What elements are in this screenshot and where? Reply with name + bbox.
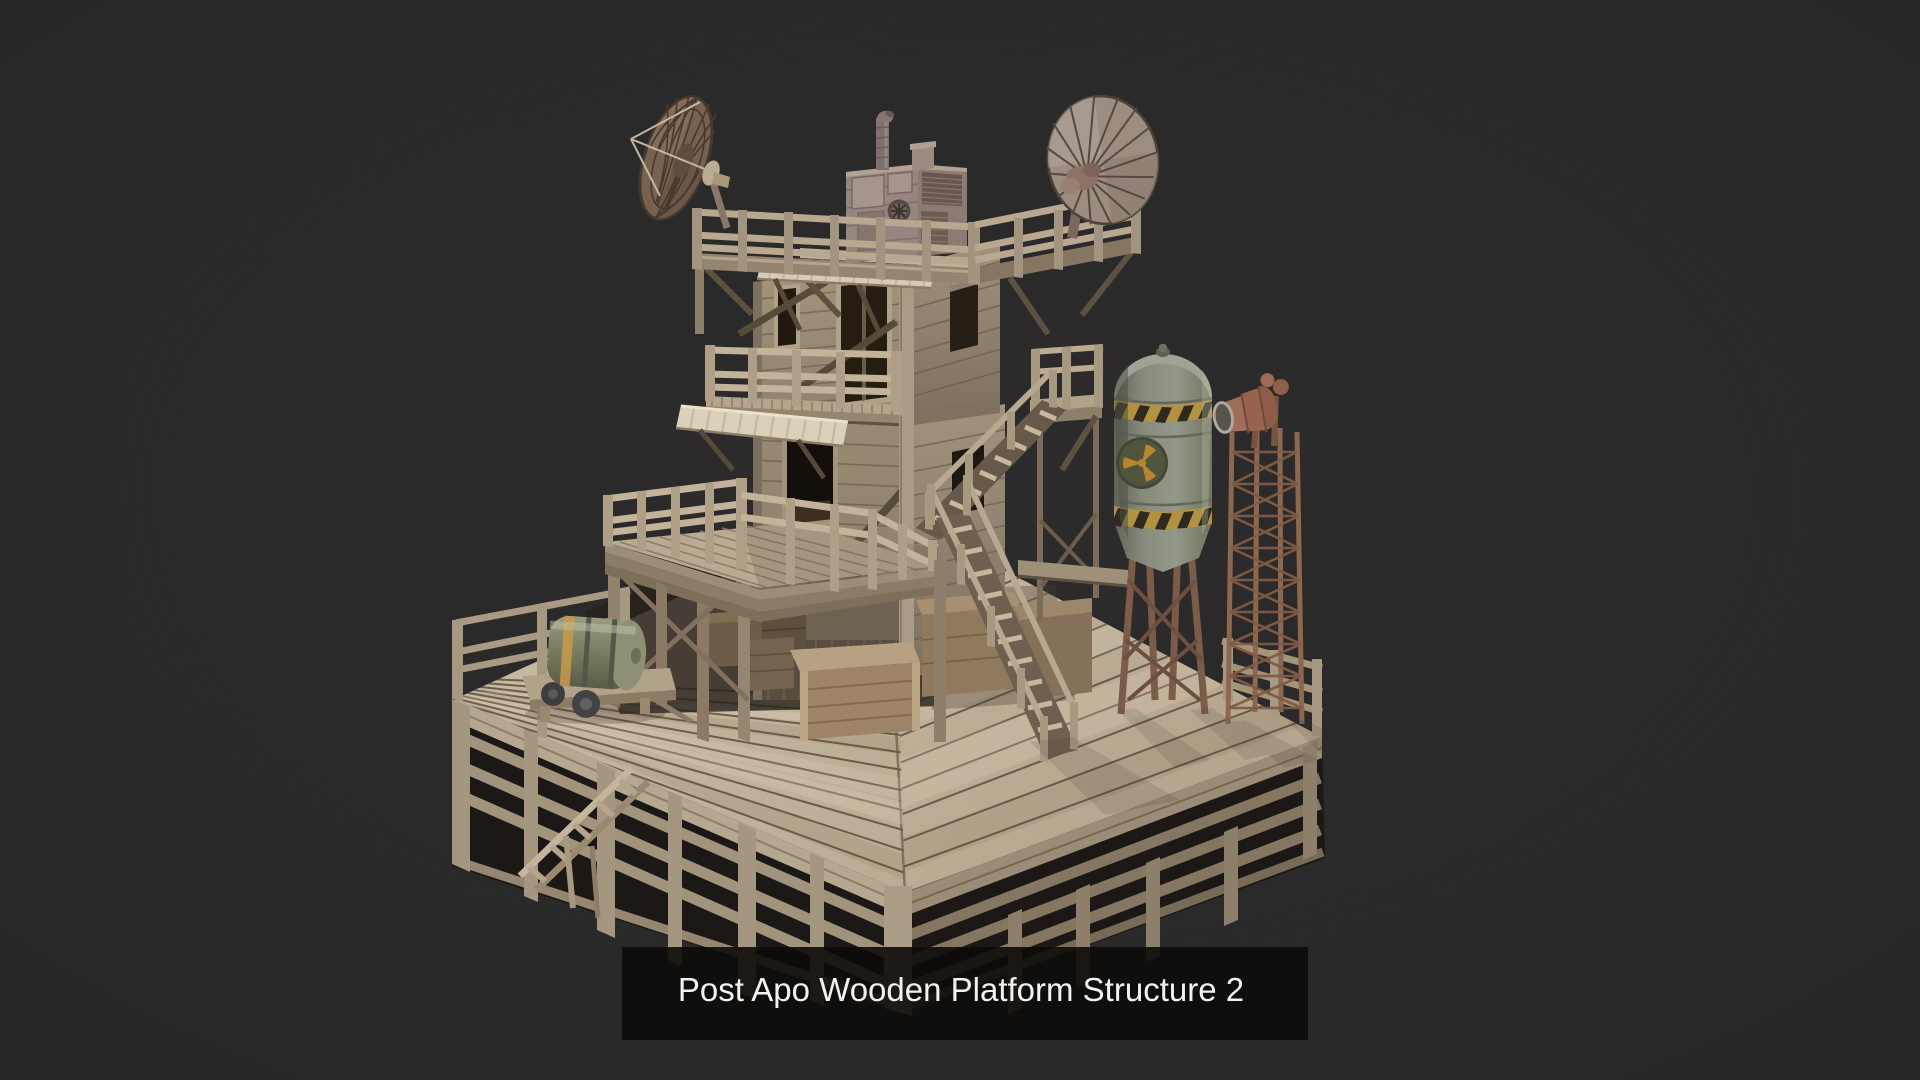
svg-text:Post Apo Wooden Platform Struc: Post Apo Wooden Platform Structure 2 [678, 971, 1244, 1008]
